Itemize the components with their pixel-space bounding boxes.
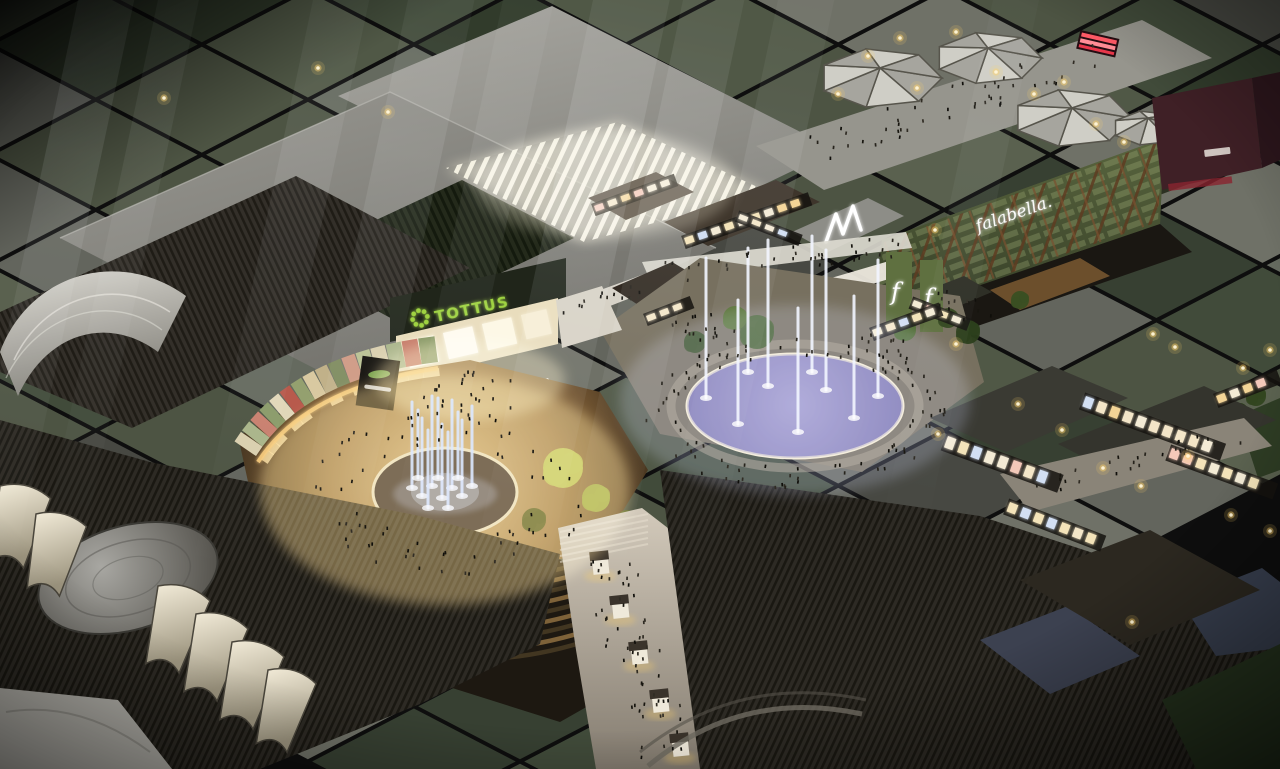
vignette [0,0,1280,769]
mall-aerial-night-render: falabella. f f TOTTUS [0,0,1280,769]
